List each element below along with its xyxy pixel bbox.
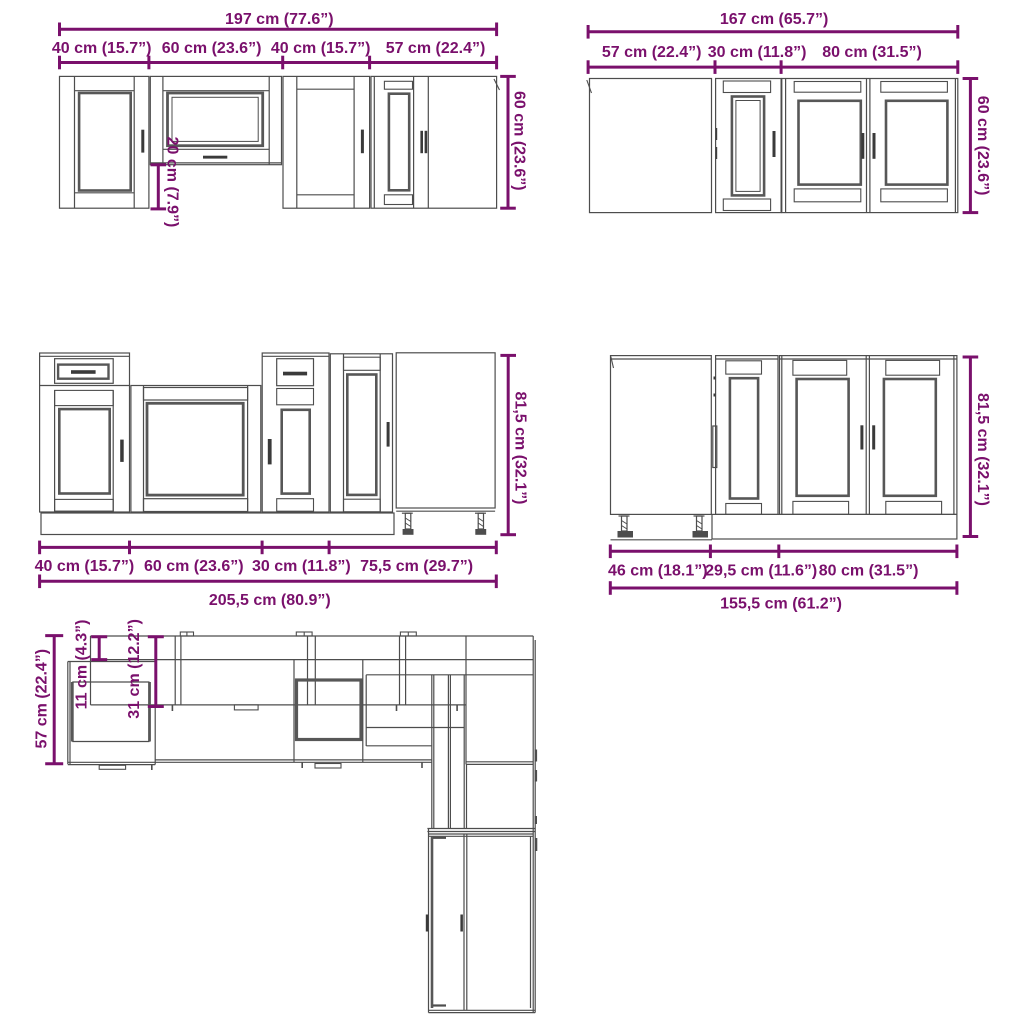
svg-text:197 cm (77.6”): 197 cm (77.6”) bbox=[225, 11, 334, 28]
svg-text:57 cm (22.4”): 57 cm (22.4”) bbox=[602, 44, 702, 61]
svg-text:60 cm (23.6”): 60 cm (23.6”) bbox=[144, 558, 244, 575]
svg-text:40 cm (15.7”): 40 cm (15.7”) bbox=[271, 40, 371, 57]
svg-text:30 cm (11.8”): 30 cm (11.8”) bbox=[708, 44, 807, 61]
svg-text:57 cm (22.4”): 57 cm (22.4”) bbox=[386, 40, 486, 57]
svg-text:20 cm (7.9”): 20 cm (7.9”) bbox=[164, 137, 181, 228]
svg-text:81,5 cm (32.1”): 81,5 cm (32.1”) bbox=[974, 393, 991, 506]
svg-text:40 cm (15.7”): 40 cm (15.7”) bbox=[52, 40, 152, 57]
svg-text:30 cm (11.8”): 30 cm (11.8”) bbox=[252, 558, 351, 575]
svg-text:155,5 cm (61.2”): 155,5 cm (61.2”) bbox=[720, 595, 842, 612]
svg-text:60 cm (23.6”): 60 cm (23.6”) bbox=[162, 40, 262, 57]
svg-text:11 cm (4.3”): 11 cm (4.3”) bbox=[73, 620, 90, 710]
svg-text:81,5 cm (32.1”): 81,5 cm (32.1”) bbox=[511, 392, 528, 505]
svg-text:167 cm (65.7”): 167 cm (65.7”) bbox=[720, 11, 829, 28]
svg-text:60 cm (23.6”): 60 cm (23.6”) bbox=[511, 91, 528, 191]
svg-text:29,5 cm (11.6”): 29,5 cm (11.6”) bbox=[705, 563, 817, 580]
svg-text:57 cm (22.4”): 57 cm (22.4”) bbox=[33, 649, 50, 749]
svg-text:205,5 cm (80.9”): 205,5 cm (80.9”) bbox=[209, 592, 331, 609]
svg-text:75,5 cm (29.7”): 75,5 cm (29.7”) bbox=[360, 558, 473, 575]
svg-text:60 cm (23.6”): 60 cm (23.6”) bbox=[974, 96, 991, 196]
svg-text:46 cm (18.1”): 46 cm (18.1”) bbox=[608, 563, 708, 580]
svg-text:31 cm (12.2”): 31 cm (12.2”) bbox=[126, 619, 143, 719]
svg-text:80 cm (31.5”): 80 cm (31.5”) bbox=[819, 563, 919, 580]
svg-text:80 cm (31.5”): 80 cm (31.5”) bbox=[822, 44, 922, 61]
svg-text:40 cm (15.7”): 40 cm (15.7”) bbox=[35, 558, 135, 575]
